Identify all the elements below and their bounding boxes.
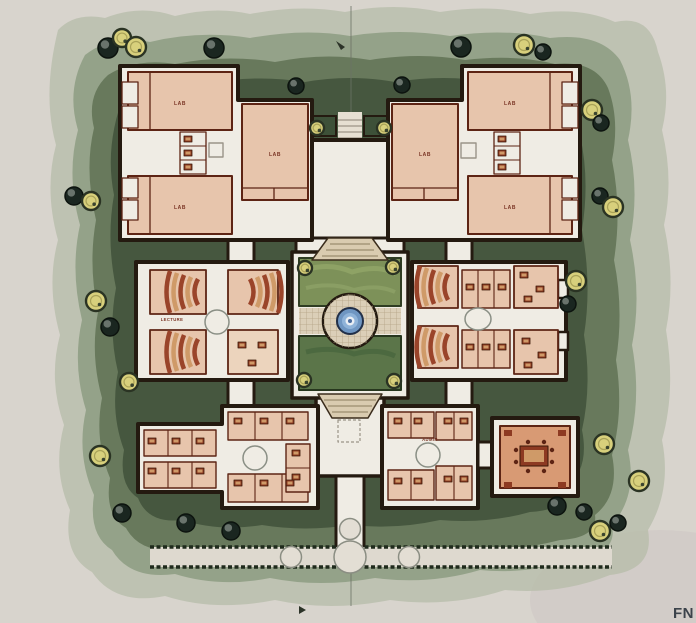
desk (196, 438, 204, 444)
desk (238, 342, 246, 348)
desk (292, 474, 300, 480)
desk (482, 344, 490, 350)
plaza-circle (340, 519, 361, 540)
desk (520, 272, 528, 278)
lab-label: LAB (504, 205, 516, 211)
desk (498, 284, 506, 290)
tree-light-icon (603, 197, 623, 217)
desk (524, 296, 532, 302)
desk (286, 480, 294, 486)
desk (184, 136, 192, 142)
building-complex: LECTURE (120, 66, 580, 548)
desk (234, 480, 242, 486)
desk (538, 352, 546, 358)
corner-mark: FN (673, 605, 694, 622)
desk (536, 286, 544, 292)
tree-dark-icon (204, 38, 224, 58)
desk (184, 150, 192, 156)
tree-dark-icon (560, 296, 576, 312)
lecture-wing-west: LECTURE (136, 262, 288, 380)
tree-dark-icon (576, 504, 592, 520)
tree-dark-icon (288, 78, 304, 94)
tree-light-icon (120, 373, 138, 391)
tree-dark-icon (222, 522, 240, 540)
tree-dark-icon (451, 37, 471, 57)
desk (148, 468, 156, 474)
desk (248, 360, 256, 366)
tree-dark-icon (394, 77, 410, 93)
desk (394, 478, 402, 484)
lab-label: LAB (504, 101, 516, 107)
desk (466, 344, 474, 350)
tree-dark-icon (65, 187, 83, 205)
desk (444, 418, 452, 424)
lecture-label: LECTURE (161, 317, 184, 322)
desk (466, 284, 474, 290)
tree-light-icon (386, 260, 400, 274)
seminar-wing-east (412, 262, 568, 380)
tree-light-icon (90, 446, 110, 466)
desk (260, 418, 268, 424)
desk (292, 450, 300, 456)
tree-light-icon (377, 121, 391, 135)
common-room (514, 330, 558, 374)
tree-light-icon (566, 271, 586, 291)
seminar-room (228, 330, 278, 374)
desk (260, 480, 268, 486)
tree-light-icon (86, 291, 106, 311)
tree-light-icon (590, 521, 610, 541)
desk (196, 468, 204, 474)
lab-room (468, 72, 572, 130)
watercolor-site-plan: LECTURE (0, 0, 696, 623)
desk (414, 478, 422, 484)
desk (522, 338, 530, 344)
rotunda (416, 443, 440, 467)
tree-dark-icon (113, 504, 131, 522)
conference-block (492, 418, 578, 496)
tree-light-icon (310, 121, 324, 135)
tree-dark-icon (535, 44, 551, 60)
desk (498, 344, 506, 350)
desk (498, 150, 506, 156)
tree-light-icon (514, 35, 534, 55)
tree-dark-icon (101, 318, 119, 336)
tree-light-icon (298, 261, 312, 275)
plaza-circle-large (334, 541, 366, 573)
plan-canvas: LECTURE (0, 0, 696, 623)
tree-light-icon (387, 374, 401, 388)
lab-room (468, 176, 572, 234)
desk (172, 468, 180, 474)
desk (498, 136, 506, 142)
admin-label: ADMIN (422, 437, 438, 442)
tree-light-icon (629, 471, 649, 491)
tree-dark-icon (593, 115, 609, 131)
desk (482, 284, 490, 290)
lab-label: LAB (174, 101, 186, 107)
lab-label: LAB (419, 152, 431, 158)
desk (258, 342, 266, 348)
desk (460, 476, 468, 482)
desk (394, 418, 402, 424)
tree-light-icon (594, 434, 614, 454)
tree-light-icon (82, 192, 100, 210)
plaza-circle (281, 547, 302, 568)
desk (460, 418, 468, 424)
rotunda (243, 446, 267, 470)
tree-dark-icon (177, 514, 195, 532)
rotunda (465, 308, 491, 330)
plaza-circle (399, 547, 420, 568)
desk (414, 418, 422, 424)
tree-light-icon (297, 373, 311, 387)
rotunda (205, 310, 229, 334)
desk (234, 418, 242, 424)
tree-dark-icon (610, 515, 626, 531)
desk (524, 362, 532, 368)
desk (286, 418, 294, 424)
desk (184, 164, 192, 170)
desk (148, 438, 156, 444)
tree-light-icon (126, 37, 146, 57)
desk (498, 164, 506, 170)
lab-label: LAB (269, 152, 281, 158)
desk (444, 476, 452, 482)
lab-label: LAB (174, 205, 186, 211)
desk (172, 438, 180, 444)
tree-dark-icon (548, 497, 566, 515)
